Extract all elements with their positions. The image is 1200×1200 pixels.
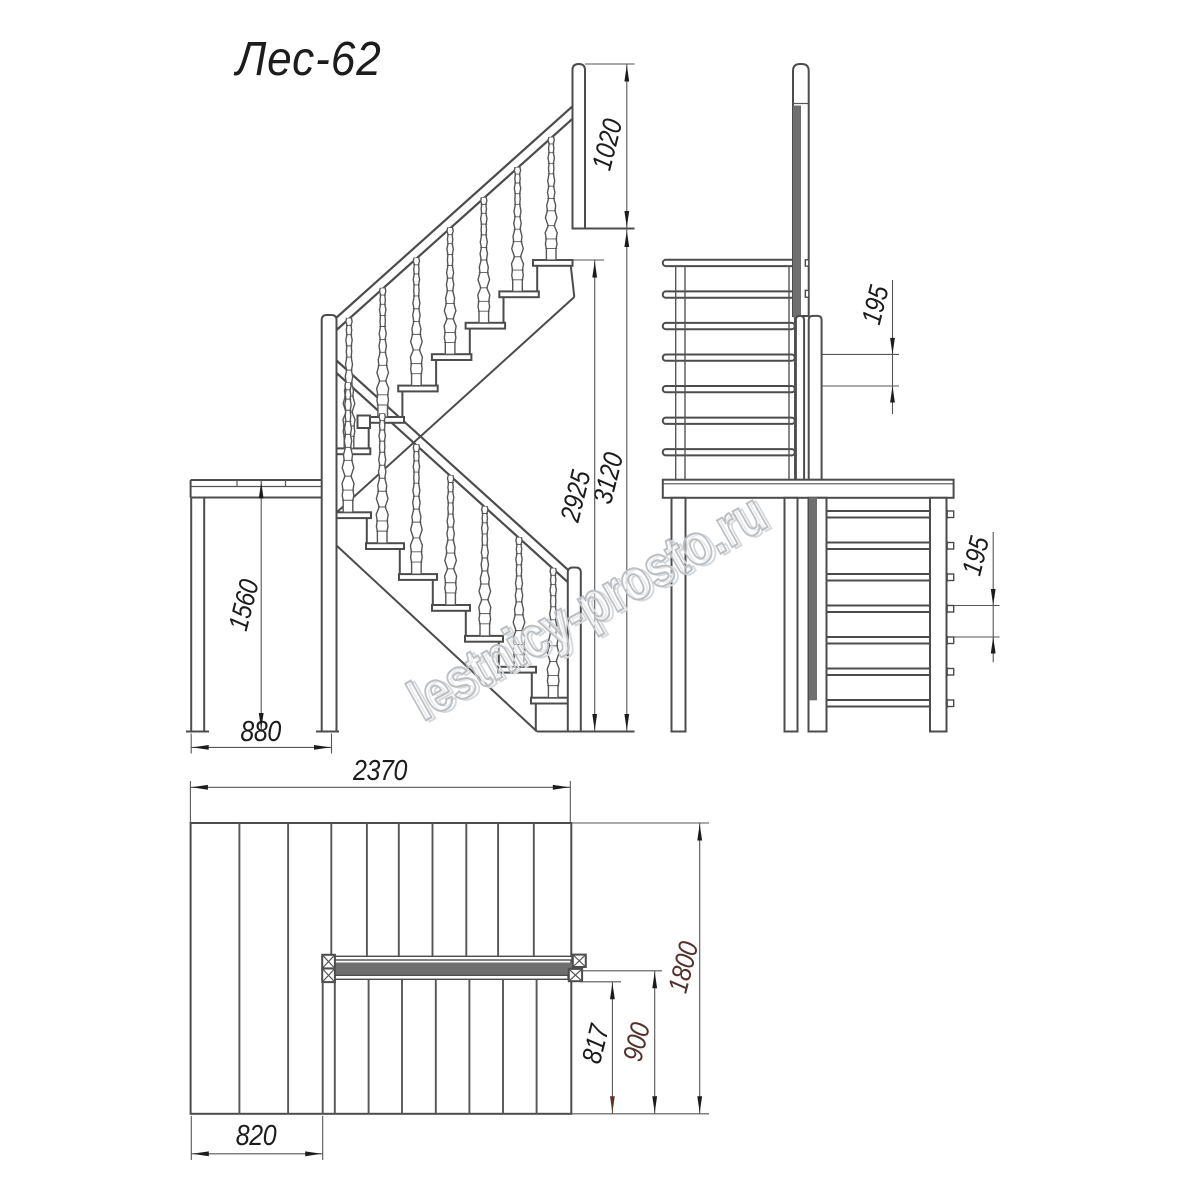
svg-text:Лес-62: Лес-62 bbox=[233, 31, 382, 85]
svg-text:820: 820 bbox=[236, 1119, 277, 1151]
svg-text:2370: 2370 bbox=[352, 754, 407, 786]
svg-text:880: 880 bbox=[240, 715, 281, 747]
